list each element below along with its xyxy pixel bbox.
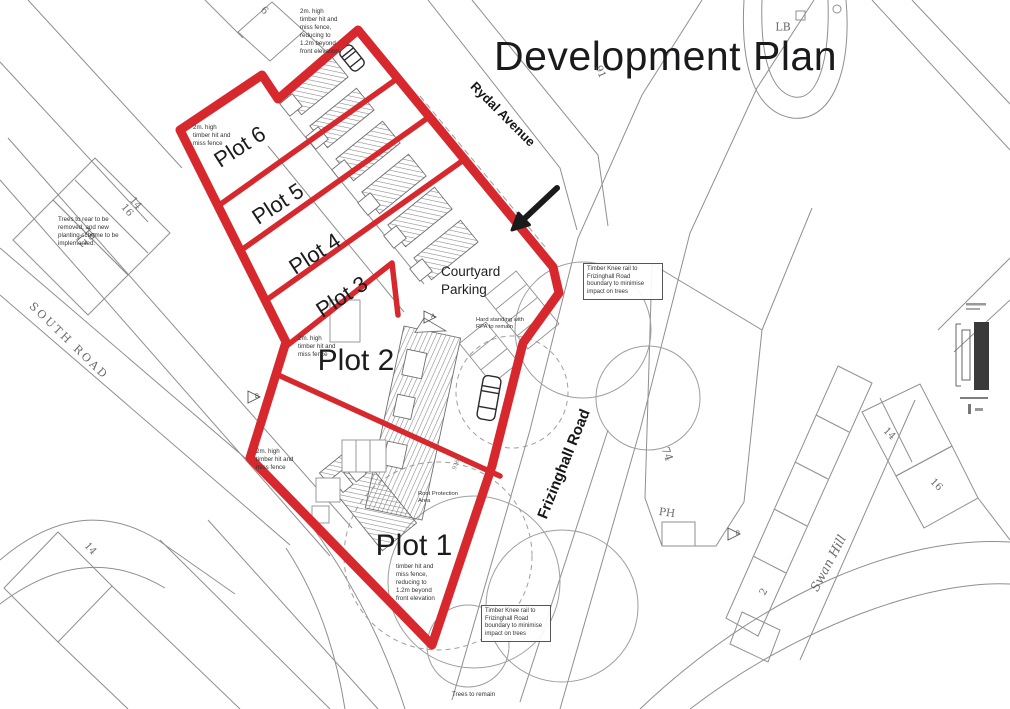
annotation-knee-rail-lower: Timber Knee rail to Frizinghall Road bou… (481, 605, 551, 642)
development-plan-page: Development Plan Plot 6 Plot 5 Plot 4 Pl… (0, 0, 1010, 709)
annotation-fence-plot2-lower: 2m. high timber hit and miss fence (256, 448, 294, 472)
annotation-fence-plot1: timber hit and miss fence, reducing to 1… (396, 563, 435, 603)
plot1-label: Plot 1 (376, 529, 453, 563)
car-icon-courtyard (476, 375, 501, 421)
swan-hill-terrace (726, 366, 872, 636)
pointer-arrow-icon (512, 188, 557, 230)
lb-label: LB (775, 21, 790, 34)
annotation-trees-remain: Trees to remain (452, 691, 495, 699)
annotation-root-protection: Root Protection Area (418, 491, 458, 506)
courtyard-parking-label: Courtyard Parking (441, 263, 500, 298)
annotation-fence-plot2: 2m. high timber hit and miss fence (298, 335, 336, 359)
frizinghall-road-east-edge (560, 0, 814, 709)
section-marker-b2-label: B (736, 531, 740, 537)
building-74-outline (645, 264, 762, 546)
ph-label: PH (658, 506, 676, 520)
scale-bar (956, 303, 989, 414)
section-marker-b1-label: B (255, 394, 259, 400)
house-right-14 (862, 384, 952, 476)
annotation-fence-plot6: 2m. high timber hit and miss fence (193, 124, 231, 148)
annotation-fence-top: 2m. high timber hit and miss fence, redu… (300, 8, 339, 56)
annotation-knee-rail-upper: Timber Knee rail to Frizinghall Road bou… (583, 263, 663, 300)
house-6-outline (238, 2, 304, 61)
section-marker-a-label: A (431, 314, 435, 320)
page-title: Development Plan (494, 33, 837, 80)
annotation-trees-rear: Trees to rear to be removed, and new pla… (58, 216, 119, 248)
annotation-hard-standing: Hard standing with RPA to remain (476, 317, 524, 332)
